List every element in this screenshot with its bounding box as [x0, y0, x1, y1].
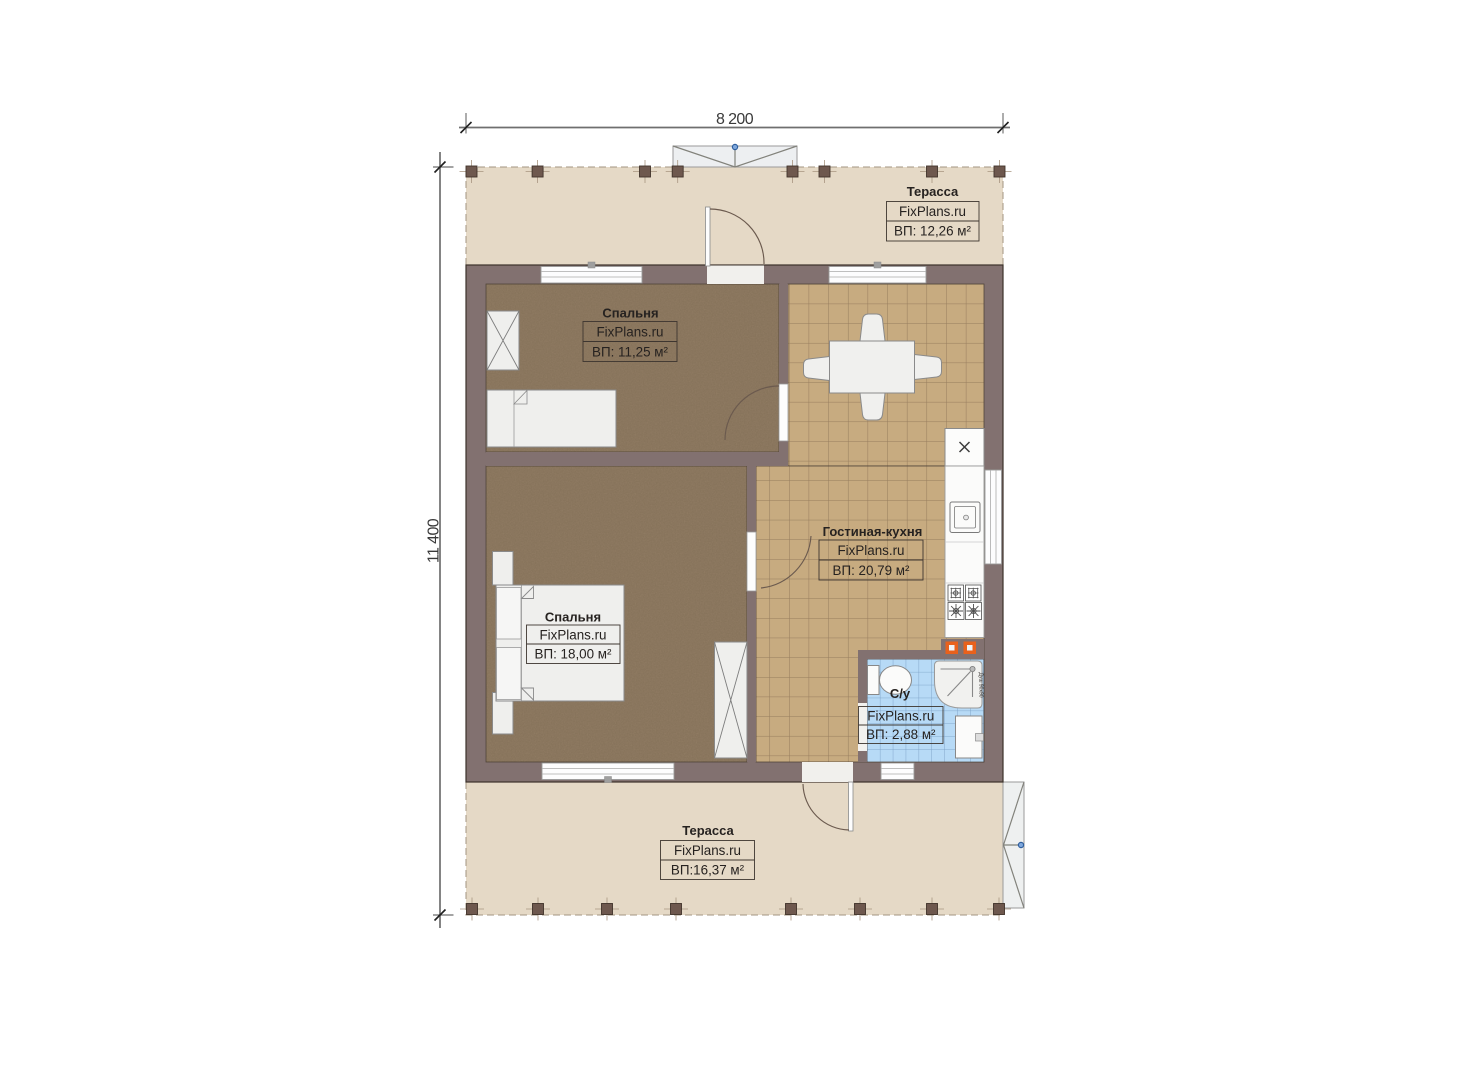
- svg-text:ВП: 11,25 м²: ВП: 11,25 м²: [592, 345, 668, 360]
- svg-text:ВП: 20,79 м²: ВП: 20,79 м²: [833, 563, 910, 578]
- svg-text:FixPlans.ru: FixPlans.ru: [838, 543, 905, 558]
- svg-text:ВП:16,37 м²: ВП:16,37 м²: [671, 863, 745, 878]
- svg-text:FixPlans.ru: FixPlans.ru: [674, 843, 741, 858]
- svg-text:Терасса: Терасса: [682, 823, 734, 838]
- svg-text:FixPlans.ru: FixPlans.ru: [899, 204, 966, 219]
- svg-text:Терасса: Терасса: [907, 184, 959, 199]
- svg-text:Душ 90х90: Душ 90х90: [978, 672, 984, 697]
- svg-text:8 200: 8 200: [716, 111, 754, 128]
- svg-text:Гостиная-кухня: Гостиная-кухня: [823, 524, 923, 539]
- svg-text:Спальня: Спальня: [602, 306, 658, 321]
- svg-text:FixPlans.ru: FixPlans.ru: [597, 325, 664, 340]
- svg-text:FixPlans.ru: FixPlans.ru: [540, 628, 607, 643]
- svg-text:С/у: С/у: [890, 686, 911, 701]
- svg-text:ВП: 18,00 м²: ВП: 18,00 м²: [535, 647, 612, 662]
- svg-text:11 400: 11 400: [426, 518, 443, 563]
- svg-text:Спальня: Спальня: [545, 610, 601, 625]
- svg-text:FixPlans.ru: FixPlans.ru: [867, 709, 934, 724]
- svg-text:ВП: 2,88 м²: ВП: 2,88 м²: [866, 727, 936, 742]
- svg-text:ВП: 12,26 м²: ВП: 12,26 м²: [894, 224, 971, 239]
